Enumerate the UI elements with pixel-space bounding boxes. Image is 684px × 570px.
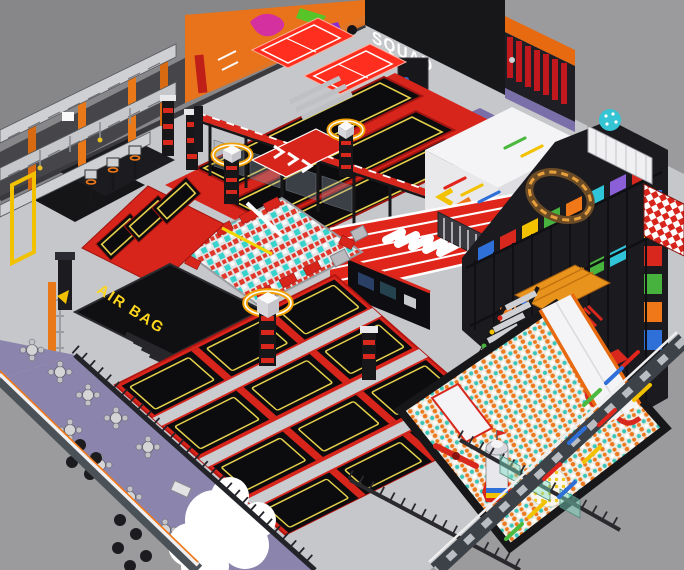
trampoline-park-render: SQUAD UP xyxy=(0,0,684,570)
court-side-tower xyxy=(360,326,378,380)
dotted-dome xyxy=(599,109,621,131)
